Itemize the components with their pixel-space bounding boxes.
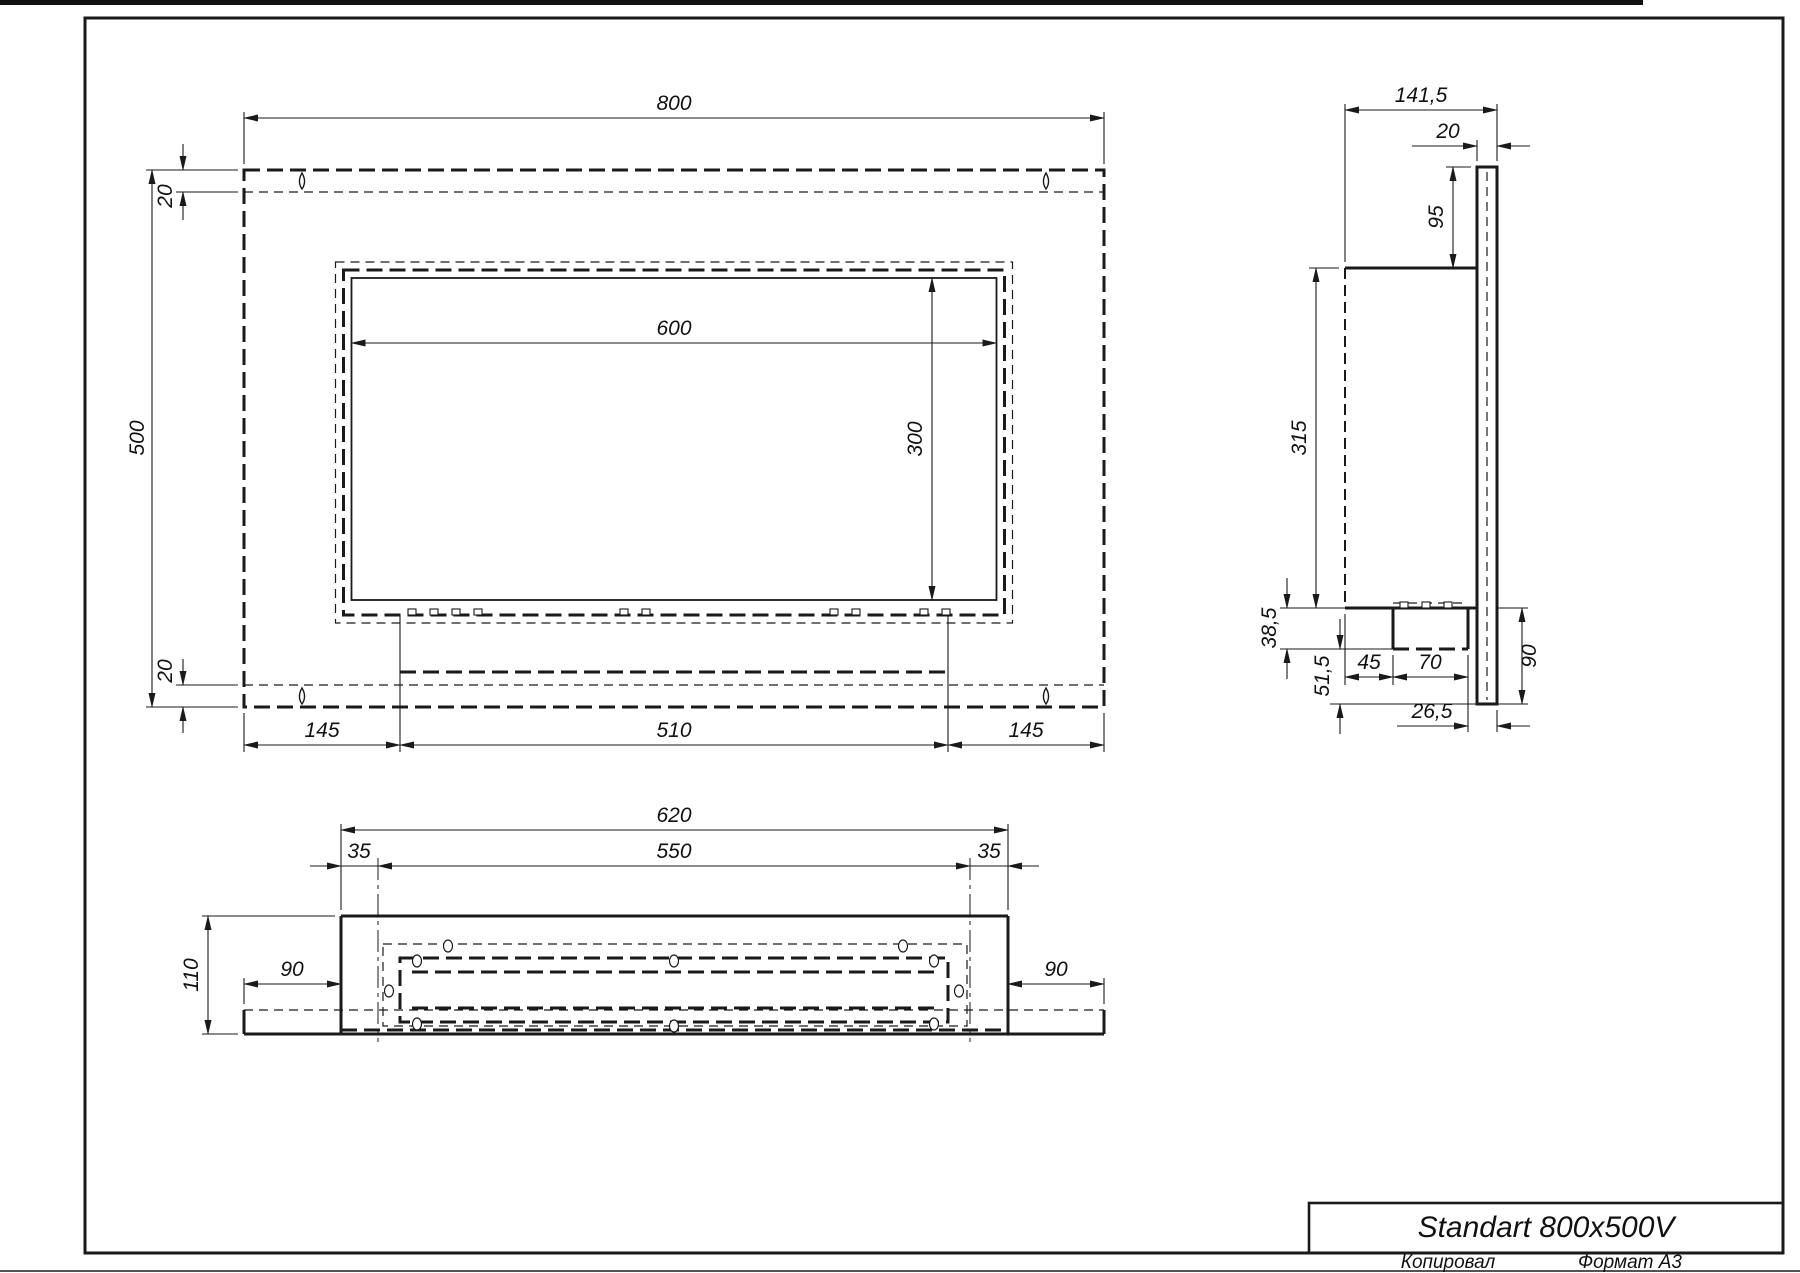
sheet-frame: [0, 0, 1800, 1271]
dim-front-inset-bottom: 20: [154, 659, 177, 684]
dim-bottom-margin-left: 35: [347, 840, 371, 863]
dim-bottom-height: 110: [180, 958, 203, 992]
bottom-view: 620 35 550 35 110 90 90: [180, 804, 1104, 1042]
dim-front-height: 500: [126, 420, 149, 455]
dim-side-depth: 141,5: [1395, 84, 1448, 107]
dim-side-top-offset: 95: [1425, 205, 1448, 229]
drawing-canvas: 800 500 20 20 600 300 145 510 145: [0, 0, 1800, 1273]
dim-front-bottom-right: 145: [1008, 719, 1043, 742]
dim-front-width: 800: [656, 92, 691, 115]
dim-side-plate-below: 90: [1518, 644, 1541, 668]
copied-label: Копировал: [1401, 1252, 1496, 1273]
dim-side-back-offset: 26,5: [1411, 700, 1453, 723]
dim-front-bottom-left: 145: [304, 719, 339, 742]
front-view: 800 500 20 20 600 300 145 510 145: [126, 92, 1104, 752]
dim-side-tray-depth: 38,5: [1258, 607, 1281, 648]
mount-holes: [385, 940, 964, 1032]
title-block: Standart 800x500V Копировал Формат А3: [1309, 1203, 1783, 1273]
side-view: 141,5 20 95 315 38,5 51,5 45 70: [1258, 84, 1541, 734]
dim-bottom-inner-width: 550: [656, 840, 691, 863]
front-frame-outline: [244, 170, 1104, 707]
dim-bottom-width: 620: [656, 804, 691, 827]
drawing-page: 800 500 20 20 600 300 145 510 145: [0, 0, 1800, 1273]
dim-bottom-flange-right: 90: [1044, 958, 1068, 981]
dim-front-inset-top: 20: [154, 184, 177, 209]
dim-front-opening-width: 600: [656, 317, 691, 340]
dim-side-body-height: 315: [1288, 420, 1311, 455]
dim-side-plate-thickness: 20: [1435, 120, 1460, 143]
drawing-title: Standart 800x500V: [1418, 1211, 1678, 1244]
dim-side-tray-width: 70: [1418, 651, 1442, 674]
keyhole-icon: [299, 173, 1048, 704]
dim-bottom-flange-left: 90: [280, 958, 304, 981]
dim-front-opening-height: 300: [904, 421, 927, 456]
scan-edge-top: [0, 0, 1643, 5]
format-label: Формат А3: [1578, 1252, 1682, 1273]
dim-side-below-tray: 51,5: [1311, 655, 1334, 696]
drawing-border: [85, 18, 1783, 1253]
dim-side-tray-offset: 45: [1357, 651, 1381, 674]
dim-front-bottom-mid: 510: [656, 719, 691, 742]
dim-bottom-margin-right: 35: [977, 840, 1001, 863]
